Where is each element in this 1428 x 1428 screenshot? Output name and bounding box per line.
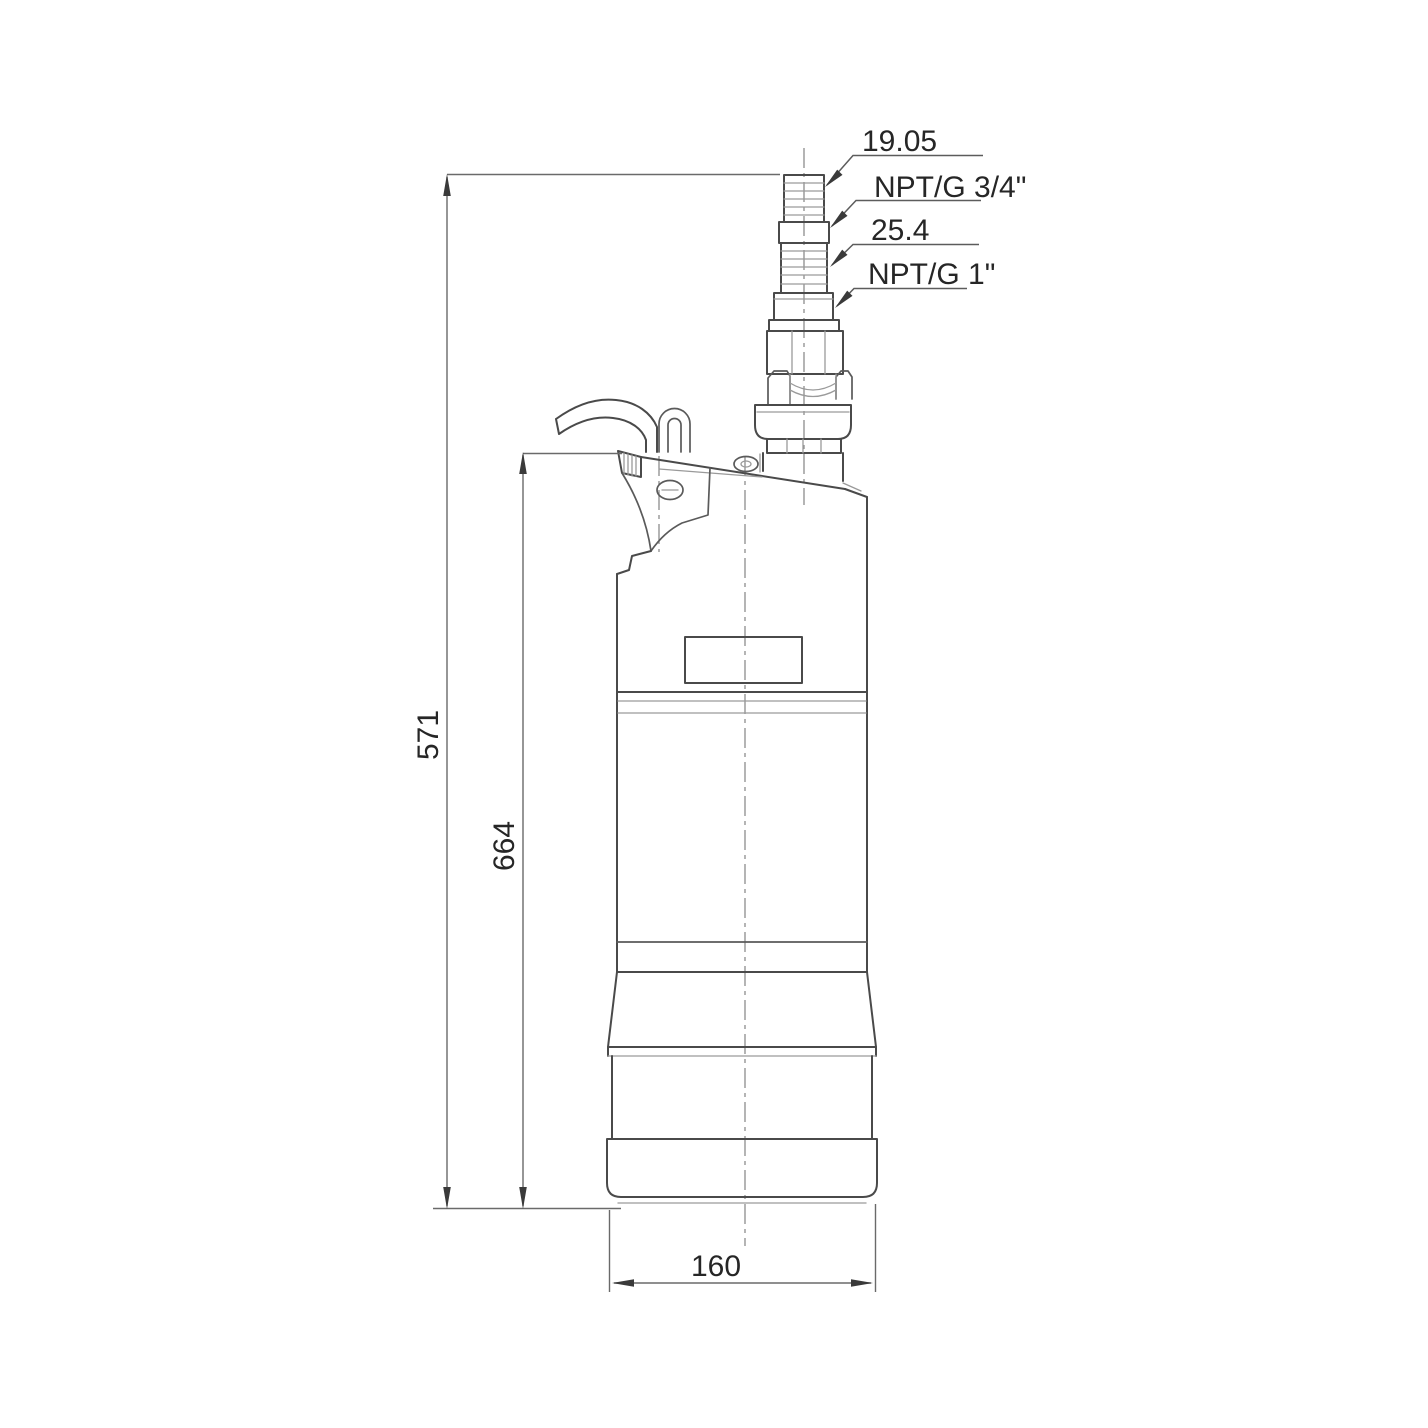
hex-nut <box>767 331 843 374</box>
callout-4-label: NPT/G 1" <box>868 258 995 291</box>
gland-eyelet <box>734 457 758 472</box>
callout-1-arrow <box>825 170 843 187</box>
skirt-band <box>608 1047 876 1056</box>
dim-160-arrow-left <box>612 1279 634 1287</box>
dim-664-arrow-up <box>519 452 527 474</box>
power-cable <box>556 400 690 452</box>
dim-160-arrow-right <box>851 1279 873 1287</box>
body-seam-lines <box>618 701 866 713</box>
dim-160-label: 160 <box>691 1250 741 1283</box>
discharge-stubs <box>763 453 843 481</box>
callouts: 19.05 NPT/G 3/4" 25.4 NPT/G 1" <box>825 125 1026 308</box>
callout-4-leader <box>837 289 967 307</box>
dim-571-arrow-up <box>443 174 451 196</box>
hex-nut-facets <box>792 331 825 374</box>
hose-adapter-fitting <box>767 175 843 374</box>
claw-lug-left <box>768 371 790 405</box>
claw-saddle-arcs <box>790 383 836 397</box>
cable-band <box>556 400 657 452</box>
callout-thread-npt-g-1: NPT/G 1" <box>835 258 995 308</box>
callout-3-label: 25.4 <box>871 214 929 247</box>
dim-664-label: 664 <box>488 821 521 871</box>
centerlines <box>659 148 804 1246</box>
pump-drawing <box>556 148 877 1246</box>
pump-lid <box>617 451 867 574</box>
pump-body <box>607 497 877 1203</box>
lid-right-corner <box>845 489 867 497</box>
callout-1-label: 19.05 <box>862 125 937 158</box>
strainer-sides <box>612 1056 872 1139</box>
cable-loop <box>659 408 690 452</box>
dimension-160: 160 <box>610 1204 876 1292</box>
dimension-664: 664 <box>488 452 622 1209</box>
pump-dimensional-drawing: 571 664 160 19.05 NPT/G 3/4" <box>0 0 1428 1428</box>
nameplate <box>685 637 802 683</box>
callout-2-label: NPT/G 3/4" <box>874 171 1026 204</box>
lid-peak-ribs <box>624 453 636 476</box>
gland-eyelet-inner <box>741 461 751 467</box>
dim-571-label: 571 <box>412 710 445 760</box>
technical-drawing-page: 571 664 160 19.05 NPT/G 3/4" <box>0 0 1428 1428</box>
coupling-collar <box>755 405 851 439</box>
dim-571-arrow-down <box>443 1187 451 1209</box>
skirt-flare <box>608 972 876 1047</box>
lid-left-step <box>617 551 651 574</box>
base-band <box>607 1139 877 1197</box>
claw-lug-right <box>836 371 852 399</box>
dim-664-arrow-down <box>519 1187 527 1209</box>
